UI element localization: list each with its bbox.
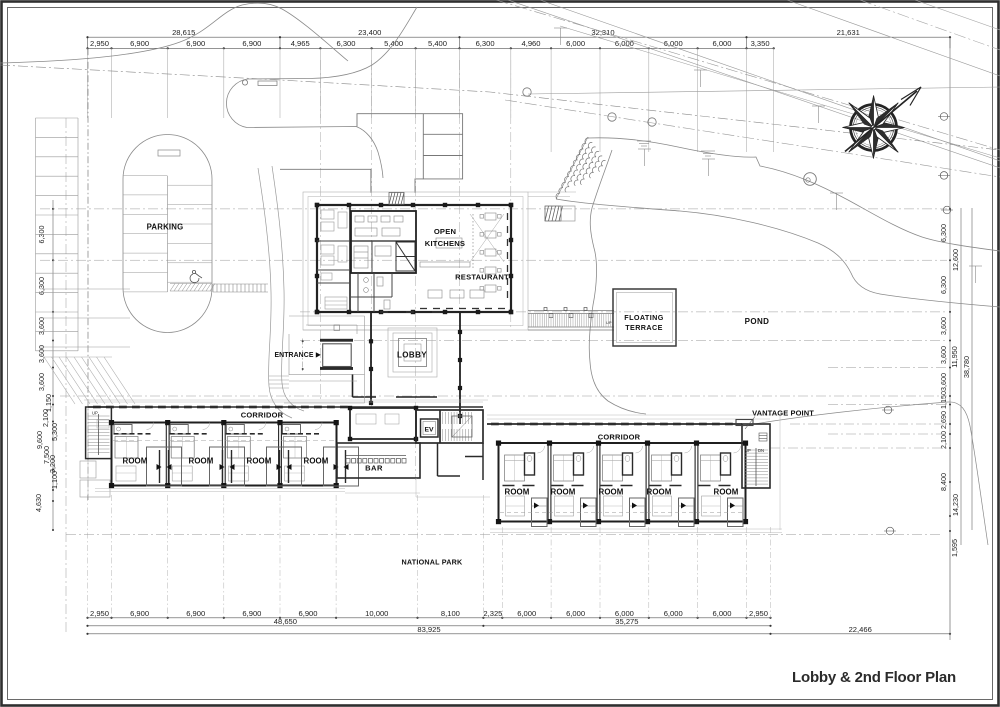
svg-text:ROOM: ROOM — [189, 457, 214, 466]
svg-text:FLOATING: FLOATING — [624, 313, 663, 322]
svg-text:6,300: 6,300 — [939, 276, 948, 294]
svg-text:ROOM: ROOM — [123, 457, 148, 466]
svg-text:DN: DN — [758, 448, 764, 453]
svg-text:23,400: 23,400 — [358, 28, 381, 37]
svg-text:6,300: 6,300 — [476, 39, 495, 48]
svg-text:ROOM: ROOM — [714, 488, 739, 497]
svg-text:ROOM: ROOM — [647, 488, 672, 497]
svg-text:EV: EV — [424, 427, 434, 434]
svg-text:6,300: 6,300 — [37, 277, 46, 295]
svg-text:POND: POND — [745, 317, 770, 326]
svg-text:ROOM: ROOM — [505, 488, 530, 497]
svg-text:CORRIDOR: CORRIDOR — [241, 411, 284, 420]
svg-text:ROOM: ROOM — [247, 457, 272, 466]
svg-text:LOBBY: LOBBY — [397, 351, 427, 360]
svg-text:BAR: BAR — [365, 464, 383, 473]
svg-text:6,900: 6,900 — [298, 609, 317, 618]
svg-text:4,960: 4,960 — [521, 39, 540, 48]
svg-text:14,230: 14,230 — [951, 494, 960, 516]
svg-text:6,900: 6,900 — [186, 609, 205, 618]
svg-text:UP: UP — [606, 320, 612, 325]
svg-text:3,600: 3,600 — [939, 373, 948, 391]
svg-text:UP: UP — [745, 448, 751, 453]
svg-text:2,950: 2,950 — [749, 609, 768, 618]
svg-text:UP: UP — [92, 411, 98, 416]
svg-text:CORRIDOR: CORRIDOR — [598, 433, 641, 442]
svg-text:RESTAURANT: RESTAURANT — [455, 273, 509, 282]
svg-text:ENTRANCE: ENTRANCE — [274, 352, 313, 359]
svg-text:TERRACE: TERRACE — [625, 323, 663, 332]
svg-text:PARKING: PARKING — [147, 223, 184, 232]
svg-text:4,630: 4,630 — [34, 494, 43, 512]
svg-text:Lobby & 2nd Floor Plan: Lobby & 2nd Floor Plan — [792, 669, 956, 686]
svg-text:2,950: 2,950 — [90, 609, 109, 618]
svg-text:8,400: 8,400 — [939, 473, 948, 491]
svg-text:NATIONAL PARK: NATIONAL PARK — [402, 558, 464, 567]
svg-text:48,650: 48,650 — [274, 617, 297, 626]
svg-text:ROOM: ROOM — [599, 488, 624, 497]
svg-text:4,965: 4,965 — [291, 39, 310, 48]
svg-text:22,466: 22,466 — [849, 625, 872, 634]
svg-text:5,300: 5,300 — [50, 423, 59, 441]
svg-text:OPEN: OPEN — [434, 227, 456, 236]
svg-text:2,325: 2,325 — [483, 609, 502, 618]
svg-text:6,900: 6,900 — [130, 609, 149, 618]
svg-text:6,900: 6,900 — [242, 39, 261, 48]
svg-text:1,150: 1,150 — [939, 391, 948, 409]
svg-text:2,690: 2,690 — [939, 411, 948, 429]
svg-text:10,000: 10,000 — [365, 609, 388, 618]
svg-text:3,600: 3,600 — [939, 317, 948, 335]
svg-text:6,900: 6,900 — [130, 39, 149, 48]
svg-text:KITCHENS: KITCHENS — [425, 239, 465, 248]
svg-text:83,925: 83,925 — [417, 625, 440, 634]
svg-text:6,900: 6,900 — [242, 609, 261, 618]
svg-text:6,000: 6,000 — [664, 609, 683, 618]
svg-text:35,275: 35,275 — [615, 617, 638, 626]
svg-text:3,600: 3,600 — [37, 373, 46, 391]
svg-text:6,000: 6,000 — [566, 609, 585, 618]
svg-text:38,780: 38,780 — [962, 356, 971, 378]
svg-text:ROOM: ROOM — [304, 457, 329, 466]
svg-text:21,631: 21,631 — [837, 28, 860, 37]
svg-text:3,350: 3,350 — [751, 39, 770, 48]
svg-text:2,950: 2,950 — [90, 39, 109, 48]
svg-text:6,300: 6,300 — [336, 39, 355, 48]
svg-text:6,900: 6,900 — [186, 39, 205, 48]
svg-text:12,600: 12,600 — [951, 249, 960, 271]
svg-text:6,300: 6,300 — [939, 224, 948, 242]
svg-text:6,000: 6,000 — [517, 609, 536, 618]
svg-text:6,000: 6,000 — [712, 39, 731, 48]
svg-text:3,600: 3,600 — [939, 346, 948, 364]
svg-text:6,000: 6,000 — [566, 39, 585, 48]
svg-text:6,000: 6,000 — [712, 609, 731, 618]
svg-text:11,950: 11,950 — [950, 346, 959, 367]
svg-text:2,100: 2,100 — [41, 409, 50, 427]
svg-text:ROOM: ROOM — [551, 488, 576, 497]
svg-text:VANTAGE POINT: VANTAGE POINT — [752, 409, 814, 418]
svg-text:1,100: 1,100 — [50, 471, 59, 489]
svg-text:3,200: 3,200 — [48, 455, 57, 473]
svg-text:5,400: 5,400 — [428, 39, 447, 48]
svg-text:3,600: 3,600 — [37, 345, 46, 363]
svg-text:8,100: 8,100 — [441, 609, 460, 618]
svg-text:3,600: 3,600 — [37, 317, 46, 335]
svg-text:1,595: 1,595 — [950, 539, 959, 557]
svg-text:2,100: 2,100 — [939, 431, 948, 449]
svg-text:28,615: 28,615 — [172, 28, 195, 37]
